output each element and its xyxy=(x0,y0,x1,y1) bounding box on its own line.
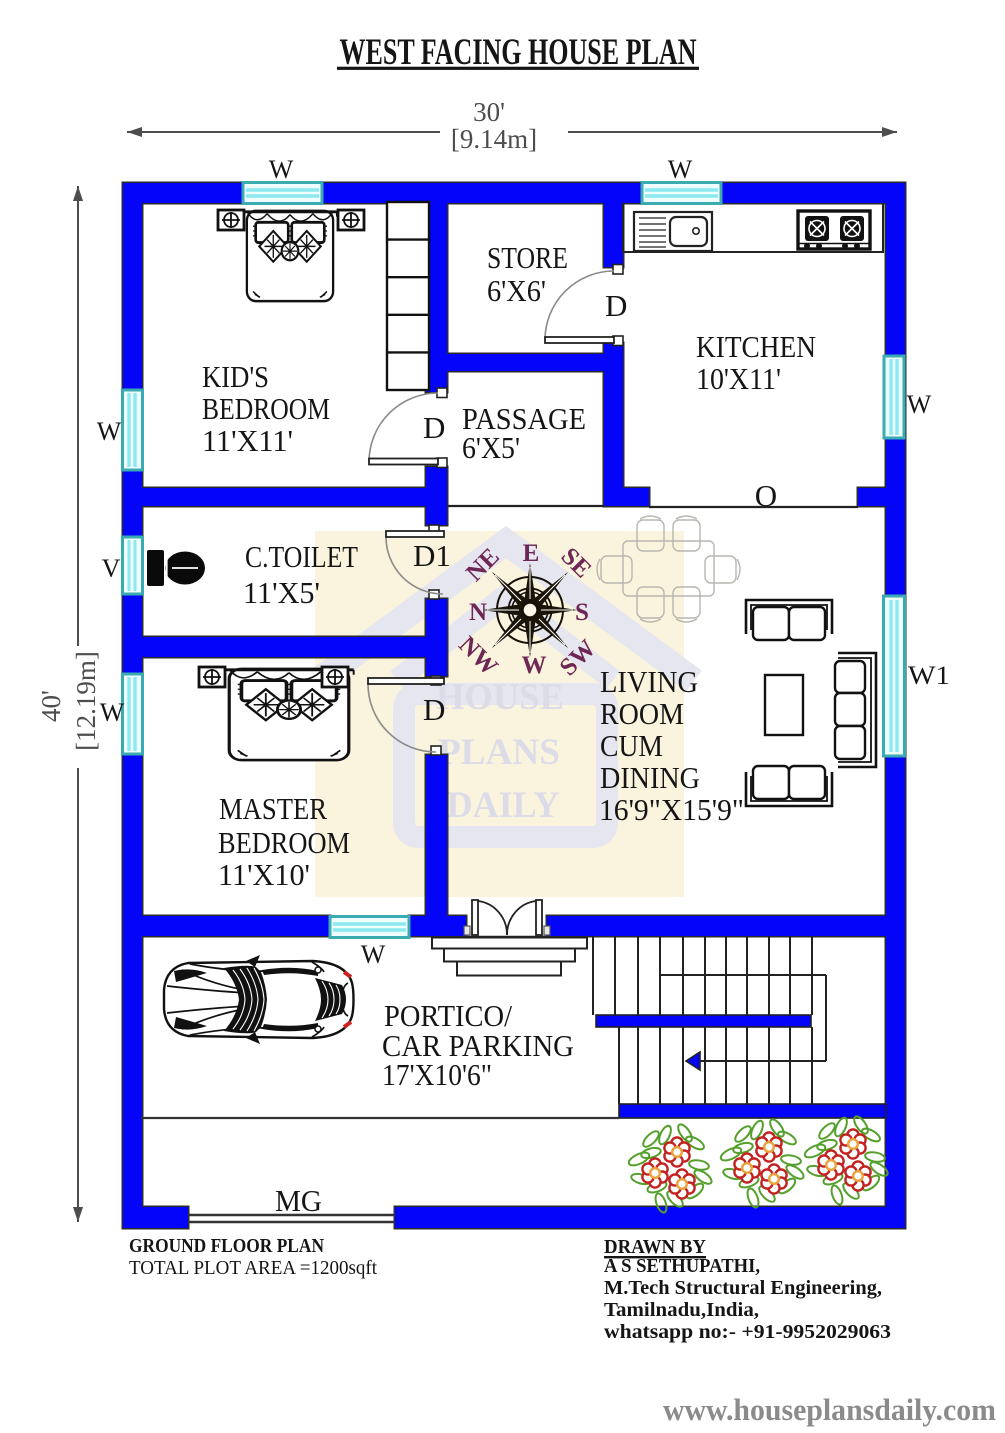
svg-text:Tamilnadu,India,: Tamilnadu,India, xyxy=(604,1299,759,1321)
svg-text:D: D xyxy=(423,692,445,727)
svg-text:M.Tech Structural Engineering,: M.Tech Structural Engineering, xyxy=(604,1277,882,1299)
svg-text:[12.19m]: [12.19m] xyxy=(71,651,101,751)
svg-text:17'X10'6": 17'X10'6" xyxy=(382,1057,492,1092)
svg-text:www.houseplansdaily.com: www.houseplansdaily.com xyxy=(663,1392,996,1427)
svg-text:W: W xyxy=(100,698,125,727)
svg-text:GROUND FLOOR PLAN: GROUND FLOOR PLAN xyxy=(129,1235,324,1257)
svg-text:11'X5': 11'X5' xyxy=(243,575,320,610)
svg-text:KID'S: KID'S xyxy=(202,359,269,394)
svg-text:11'X10': 11'X10' xyxy=(218,857,310,892)
svg-text:D1: D1 xyxy=(413,538,451,573)
svg-text:E: E xyxy=(523,540,540,567)
svg-text:S: S xyxy=(575,599,589,626)
svg-text:W1: W1 xyxy=(908,661,950,690)
svg-text:C.TOILET: C.TOILET xyxy=(245,539,358,574)
svg-text:DINING: DINING xyxy=(600,760,700,795)
svg-text:11'X11': 11'X11' xyxy=(202,423,293,458)
svg-text:W: W xyxy=(522,652,547,679)
svg-text:CUM: CUM xyxy=(600,728,663,763)
svg-text:6'X6': 6'X6' xyxy=(487,273,546,308)
svg-text:whatsapp no:- +91-9952029063: whatsapp no:- +91-9952029063 xyxy=(604,1321,891,1343)
svg-text:PLANS: PLANS xyxy=(438,732,560,773)
svg-text:40': 40' xyxy=(36,690,66,722)
svg-text:HOUSE: HOUSE xyxy=(436,677,564,718)
svg-text:D: D xyxy=(423,410,445,445)
svg-text:W: W xyxy=(269,155,294,184)
svg-text:16'9"X15'9": 16'9"X15'9" xyxy=(599,792,744,827)
svg-text:MG: MG xyxy=(275,1183,322,1218)
svg-text:10'X11': 10'X11' xyxy=(696,361,781,396)
svg-text:TOTAL PLOT AREA =1200sqft: TOTAL PLOT AREA =1200sqft xyxy=(129,1257,377,1279)
svg-text:ROOM: ROOM xyxy=(600,696,684,731)
svg-text:BEDROOM: BEDROOM xyxy=(218,825,350,860)
svg-text:KITCHEN: KITCHEN xyxy=(696,329,816,364)
svg-text:W: W xyxy=(907,390,932,419)
svg-text:MASTER: MASTER xyxy=(219,791,327,826)
svg-text:D: D xyxy=(605,288,627,323)
svg-text:BEDROOM: BEDROOM xyxy=(202,391,330,426)
svg-text:V: V xyxy=(102,554,121,583)
svg-text:O: O xyxy=(755,478,777,513)
svg-text:[9.14m]: [9.14m] xyxy=(451,124,537,154)
svg-text:W: W xyxy=(361,940,386,969)
svg-text:W: W xyxy=(97,417,122,446)
svg-text:30': 30' xyxy=(473,97,505,127)
svg-text:LIVING: LIVING xyxy=(600,664,698,699)
svg-text:STORE: STORE xyxy=(487,240,568,275)
svg-text:6'X5': 6'X5' xyxy=(462,430,520,465)
svg-text:N: N xyxy=(469,599,487,626)
svg-text:W: W xyxy=(668,155,693,184)
svg-text:DAILY: DAILY xyxy=(447,785,560,826)
